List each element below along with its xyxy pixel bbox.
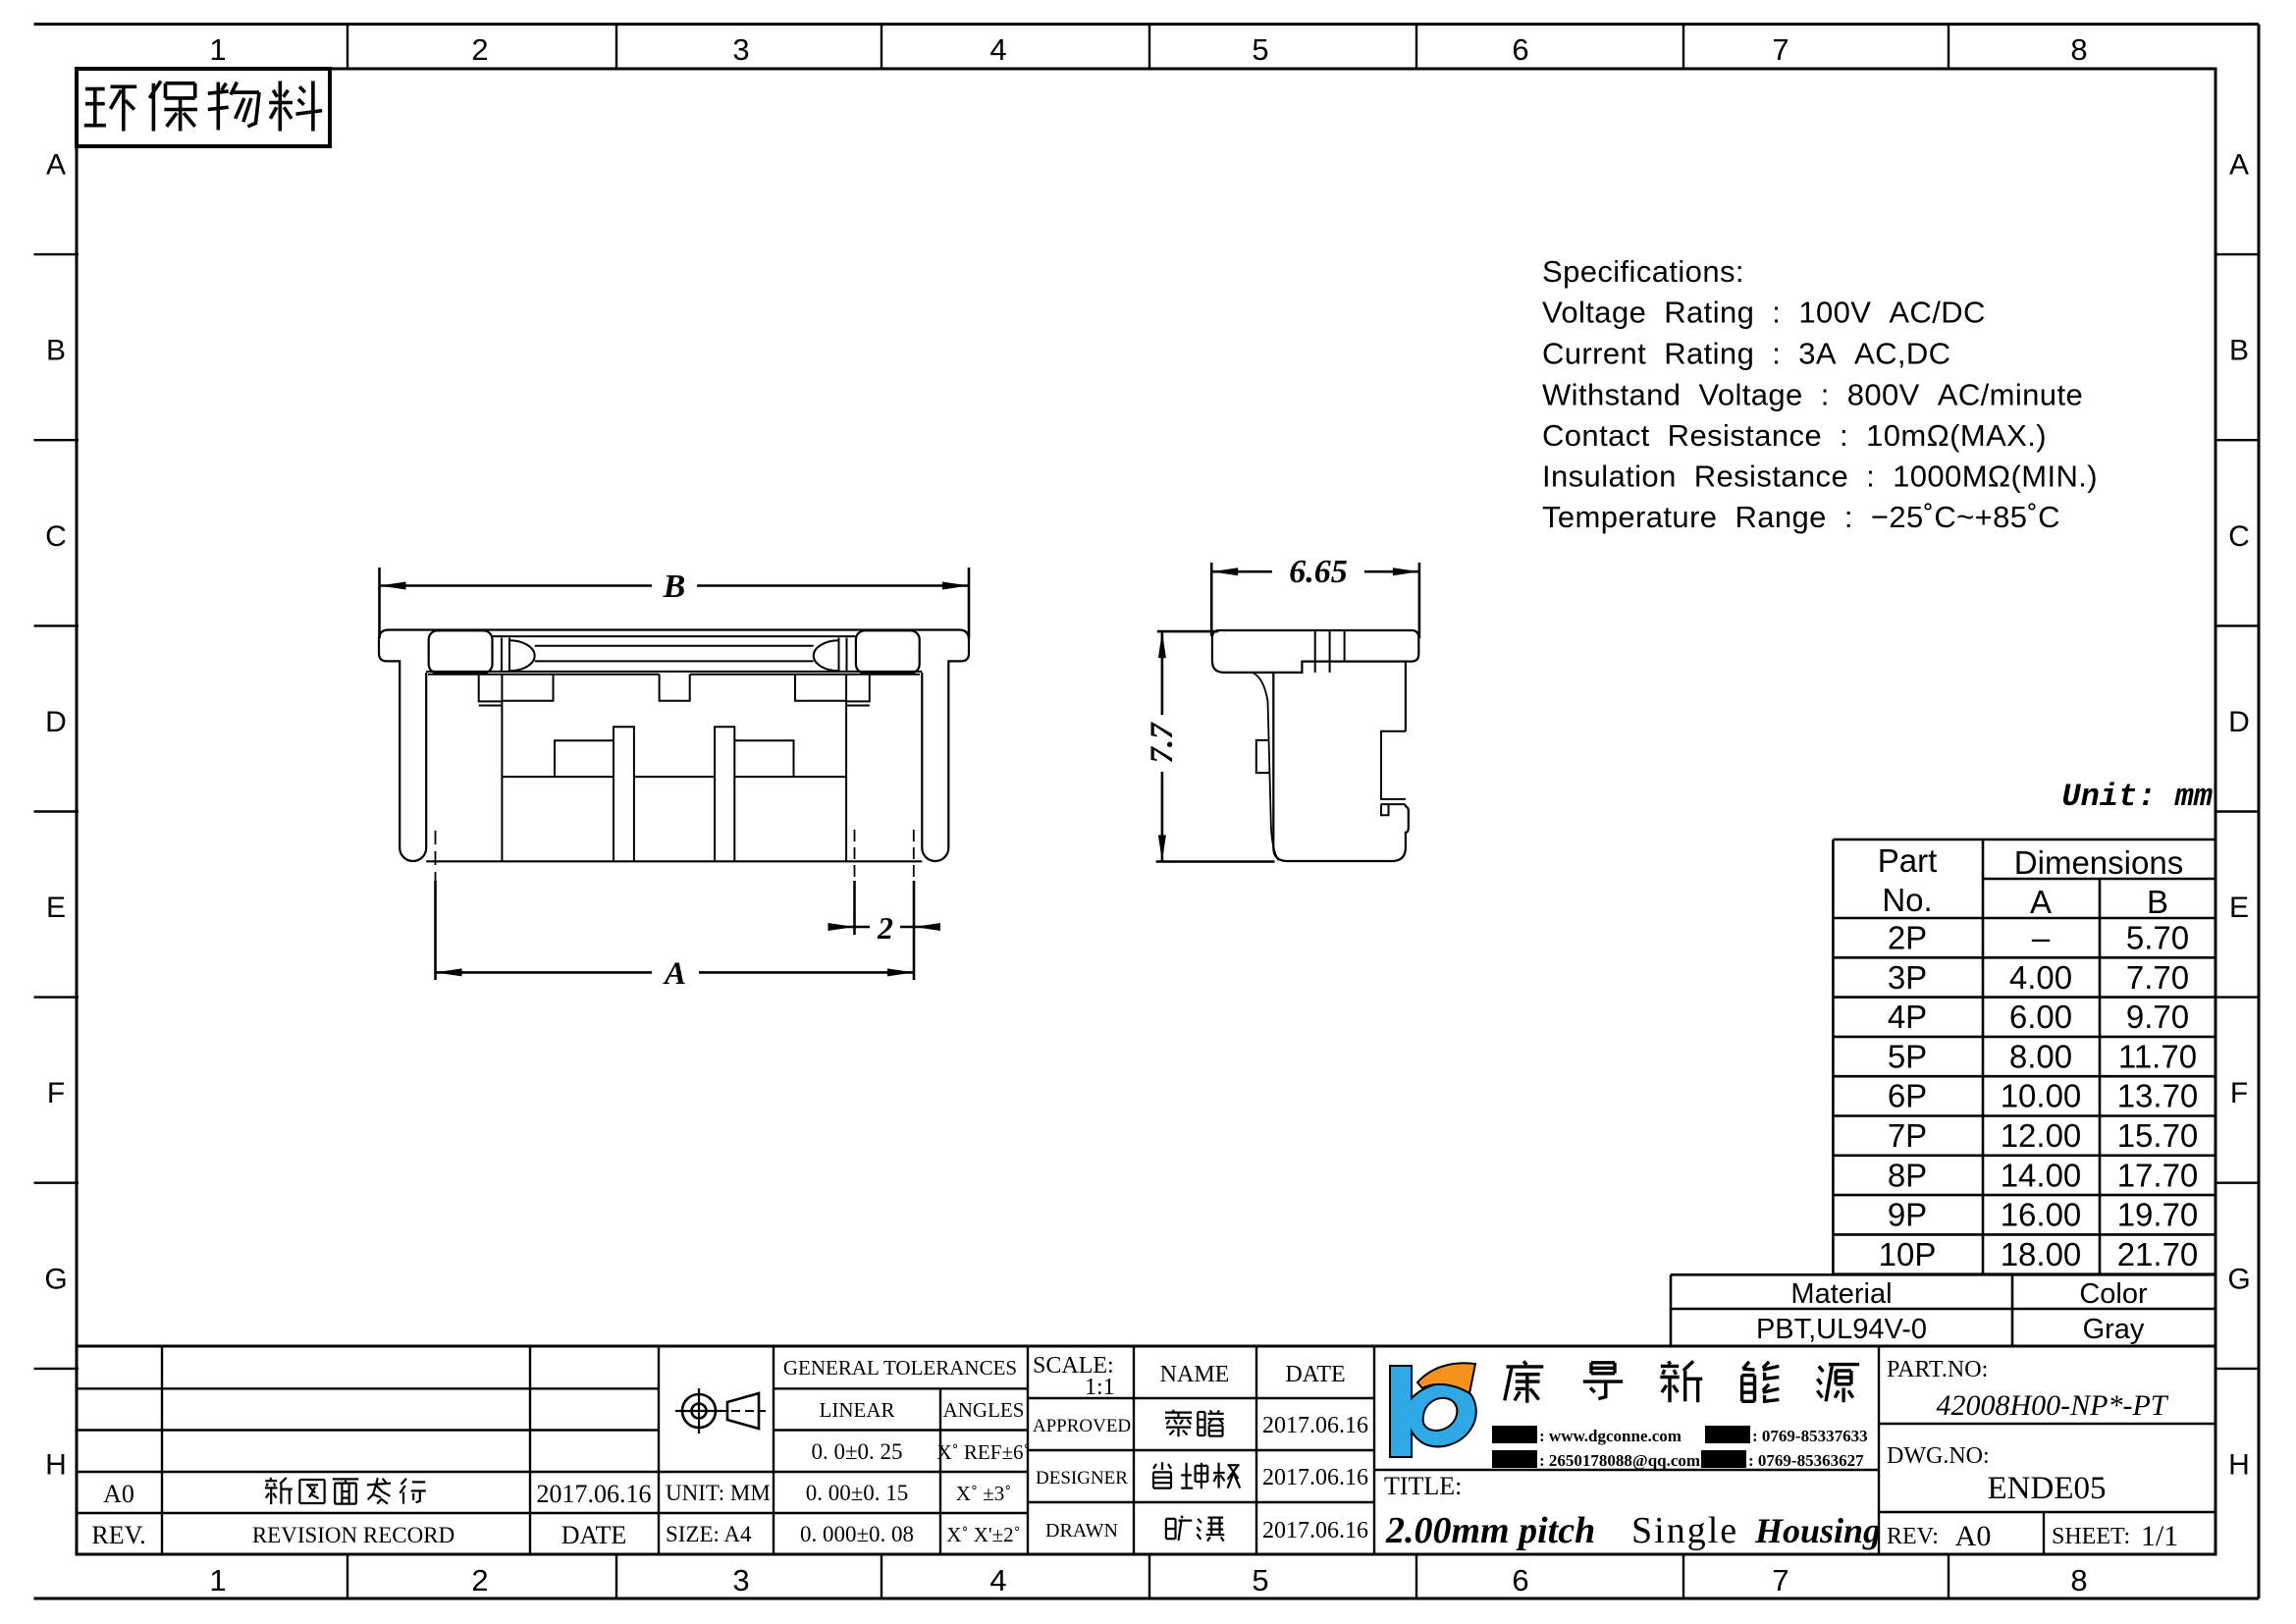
svg-text:1/1: 1/1 bbox=[2141, 1520, 2178, 1552]
svg-text:SHEET:: SHEET: bbox=[2052, 1524, 2130, 1549]
svg-text:1: 1 bbox=[209, 1563, 226, 1597]
svg-text:11.70: 11.70 bbox=[2118, 1038, 2197, 1074]
svg-text:Material: Material bbox=[1790, 1278, 1892, 1310]
svg-text:F: F bbox=[2230, 1077, 2248, 1110]
svg-text:12.00: 12.00 bbox=[2001, 1117, 2082, 1154]
svg-text:9P: 9P bbox=[1888, 1197, 1927, 1233]
svg-text:6.65: 6.65 bbox=[1289, 554, 1348, 590]
svg-text:H: H bbox=[45, 1449, 67, 1482]
svg-text:2: 2 bbox=[471, 32, 488, 67]
svg-text:DRAWN: DRAWN bbox=[1045, 1520, 1118, 1542]
svg-text:3: 3 bbox=[732, 1563, 749, 1597]
svg-text:: www.dgconne.com: : www.dgconne.com bbox=[1539, 1427, 1682, 1445]
svg-text:DATE: DATE bbox=[1285, 1362, 1345, 1387]
svg-text:Single: Single bbox=[1631, 1510, 1738, 1551]
svg-text:PBT,UL94V-0: PBT,UL94V-0 bbox=[1756, 1314, 1927, 1345]
svg-text:7: 7 bbox=[1772, 32, 1789, 67]
svg-text:2017.06.16: 2017.06.16 bbox=[537, 1480, 652, 1508]
svg-text:4.00: 4.00 bbox=[2009, 959, 2072, 996]
svg-text:G: G bbox=[44, 1263, 67, 1295]
svg-text:D: D bbox=[2228, 706, 2250, 738]
svg-text:8: 8 bbox=[2070, 32, 2087, 67]
svg-text:A: A bbox=[46, 149, 66, 182]
svg-text:13.70: 13.70 bbox=[2117, 1078, 2199, 1114]
svg-text:A0: A0 bbox=[103, 1480, 134, 1508]
svg-text:G: G bbox=[2227, 1263, 2250, 1295]
svg-text:Gray: Gray bbox=[2083, 1314, 2145, 1345]
svg-text:Withstand Voltage : 800V A: Withstand Voltage : 800V AC/minute bbox=[1542, 378, 2083, 412]
svg-text:APPROVED: APPROVED bbox=[1033, 1416, 1131, 1436]
svg-text:: 0769-85363627: : 0769-85363627 bbox=[1748, 1451, 1864, 1470]
svg-text:–: – bbox=[2032, 920, 2051, 956]
svg-text:ENDE05: ENDE05 bbox=[1988, 1471, 2107, 1506]
svg-text:Temperature Range : −25˚C~+: Temperature Range : −25˚C~+85˚C bbox=[1542, 500, 2060, 534]
svg-text:9.70: 9.70 bbox=[2126, 999, 2189, 1035]
svg-text:2: 2 bbox=[471, 1563, 488, 1597]
svg-text:8.00: 8.00 bbox=[2009, 1038, 2072, 1074]
svg-text:LINEAR: LINEAR bbox=[820, 1398, 895, 1422]
svg-text:X˚ ±3˚: X˚ ±3˚ bbox=[956, 1482, 1011, 1505]
svg-text:B: B bbox=[46, 335, 66, 367]
svg-text:1:1: 1:1 bbox=[1085, 1375, 1115, 1400]
svg-text:Contact Resistance : 10mΩ(M: Contact Resistance : 10mΩ(MAX.) bbox=[1542, 418, 2047, 453]
svg-text:17.70: 17.70 bbox=[2117, 1157, 2199, 1193]
svg-text:Housing: Housing bbox=[1754, 1511, 1881, 1550]
svg-text:2017.06.16: 2017.06.16 bbox=[1262, 1518, 1368, 1543]
svg-text:6P: 6P bbox=[1888, 1078, 1927, 1114]
svg-text:8: 8 bbox=[2070, 1563, 2087, 1597]
svg-text:PART.NO:: PART.NO: bbox=[1887, 1357, 1988, 1382]
svg-text:DWG.NO:: DWG.NO: bbox=[1887, 1443, 1990, 1469]
svg-text:7.7: 7.7 bbox=[1145, 722, 1180, 764]
svg-text:REVISION RECORD: REVISION RECORD bbox=[252, 1523, 454, 1547]
svg-text:7.70: 7.70 bbox=[2126, 959, 2189, 996]
svg-text:6.00: 6.00 bbox=[2009, 999, 2072, 1035]
svg-text:E: E bbox=[46, 892, 66, 924]
svg-text:GENERAL TOLERANCES: GENERAL TOLERANCES bbox=[783, 1356, 1017, 1380]
svg-text:A0: A0 bbox=[1955, 1520, 1992, 1552]
svg-text:A: A bbox=[2229, 149, 2249, 182]
svg-text:10.00: 10.00 bbox=[2001, 1078, 2082, 1114]
svg-text:X˚ REF±6˚: X˚ REF±6˚ bbox=[937, 1440, 1031, 1464]
svg-text:NAME: NAME bbox=[1160, 1362, 1230, 1387]
svg-text:5: 5 bbox=[1252, 1563, 1268, 1597]
svg-text:6: 6 bbox=[1512, 32, 1528, 67]
svg-text:5: 5 bbox=[1252, 32, 1268, 67]
svg-text:C: C bbox=[45, 520, 67, 553]
svg-text:Unit: mm: Unit: mm bbox=[2061, 779, 2213, 815]
svg-text:0. 00±0. 15: 0. 00±0. 15 bbox=[806, 1481, 909, 1505]
svg-text:2P: 2P bbox=[1888, 920, 1927, 956]
svg-text:C: C bbox=[2228, 520, 2250, 553]
svg-text:Color: Color bbox=[2079, 1278, 2148, 1310]
svg-text:0. 0±0. 25: 0. 0±0. 25 bbox=[811, 1439, 902, 1464]
svg-text:1: 1 bbox=[209, 32, 226, 67]
svg-text:16.00: 16.00 bbox=[2001, 1197, 2082, 1233]
svg-text:5.70: 5.70 bbox=[2126, 920, 2189, 956]
svg-text:14.00: 14.00 bbox=[2001, 1157, 2082, 1193]
svg-text:4P: 4P bbox=[1888, 999, 1927, 1035]
svg-text:7: 7 bbox=[1772, 1563, 1789, 1597]
svg-text:4: 4 bbox=[989, 32, 1006, 67]
svg-text:2.00mm pitch: 2.00mm pitch bbox=[1385, 1510, 1595, 1551]
svg-text:10P: 10P bbox=[1879, 1236, 1937, 1272]
svg-text:2017.06.16: 2017.06.16 bbox=[1262, 1465, 1368, 1490]
svg-text:UNIT: MM: UNIT: MM bbox=[666, 1481, 771, 1505]
svg-text:Voltage Rating : 100V AC/D: Voltage Rating : 100V AC/DC bbox=[1542, 296, 1986, 330]
svg-text:6: 6 bbox=[1512, 1563, 1528, 1597]
svg-text:TITLE:: TITLE: bbox=[1384, 1472, 1462, 1500]
svg-text:7P: 7P bbox=[1888, 1117, 1927, 1154]
svg-text:DATE: DATE bbox=[561, 1521, 626, 1549]
svg-text:: 0769-85337633: : 0769-85337633 bbox=[1752, 1427, 1868, 1445]
svg-text:B: B bbox=[2229, 335, 2249, 367]
svg-text:No.: No. bbox=[1882, 882, 1932, 918]
svg-text:2017.06.16: 2017.06.16 bbox=[1262, 1413, 1368, 1438]
svg-text:3P: 3P bbox=[1888, 959, 1927, 996]
svg-text:A: A bbox=[663, 956, 686, 992]
svg-text:F: F bbox=[47, 1077, 65, 1110]
svg-text:: 2650178088@qq.com: : 2650178088@qq.com bbox=[1539, 1451, 1700, 1470]
svg-text:3: 3 bbox=[732, 32, 749, 67]
svg-text:ANGLES: ANGLES bbox=[943, 1398, 1025, 1422]
svg-text:A: A bbox=[2030, 884, 2052, 920]
svg-text:Specifications:: Specifications: bbox=[1542, 254, 1744, 289]
svg-text:REV:: REV: bbox=[1887, 1524, 1939, 1549]
svg-text:8P: 8P bbox=[1888, 1157, 1927, 1193]
svg-text:B: B bbox=[663, 568, 686, 605]
svg-text:Current Rating : 3A AC,DC: Current Rating : 3A AC,DC bbox=[1542, 337, 1950, 371]
svg-text:0. 000±0. 08: 0. 000±0. 08 bbox=[800, 1522, 914, 1546]
svg-text:Dimensions: Dimensions bbox=[2014, 844, 2183, 881]
svg-text:5P: 5P bbox=[1888, 1038, 1927, 1074]
svg-text:X˚ X'±2˚: X˚ X'±2˚ bbox=[946, 1523, 1020, 1546]
svg-text:2: 2 bbox=[877, 910, 893, 946]
svg-text:B: B bbox=[2147, 884, 2168, 920]
svg-text:Insulation Resistance : 100: Insulation Resistance : 1000MΩ(MIN.) bbox=[1542, 460, 2098, 494]
svg-text:21.70: 21.70 bbox=[2117, 1236, 2199, 1272]
svg-text:18.00: 18.00 bbox=[2001, 1236, 2082, 1272]
svg-text:E: E bbox=[2229, 892, 2249, 924]
svg-text:42008H00-NP*-PT: 42008H00-NP*-PT bbox=[1937, 1389, 2169, 1422]
svg-text:SIZE: A4: SIZE: A4 bbox=[666, 1522, 752, 1546]
svg-text:D: D bbox=[45, 706, 67, 738]
svg-text:15.70: 15.70 bbox=[2117, 1117, 2199, 1154]
svg-text:DESIGNER: DESIGNER bbox=[1036, 1468, 1128, 1489]
svg-text:H: H bbox=[2228, 1449, 2250, 1482]
svg-text:Part: Part bbox=[1878, 842, 1938, 879]
svg-text:4: 4 bbox=[989, 1563, 1006, 1597]
svg-text:REV.: REV. bbox=[91, 1521, 145, 1549]
svg-text:19.70: 19.70 bbox=[2117, 1197, 2199, 1233]
